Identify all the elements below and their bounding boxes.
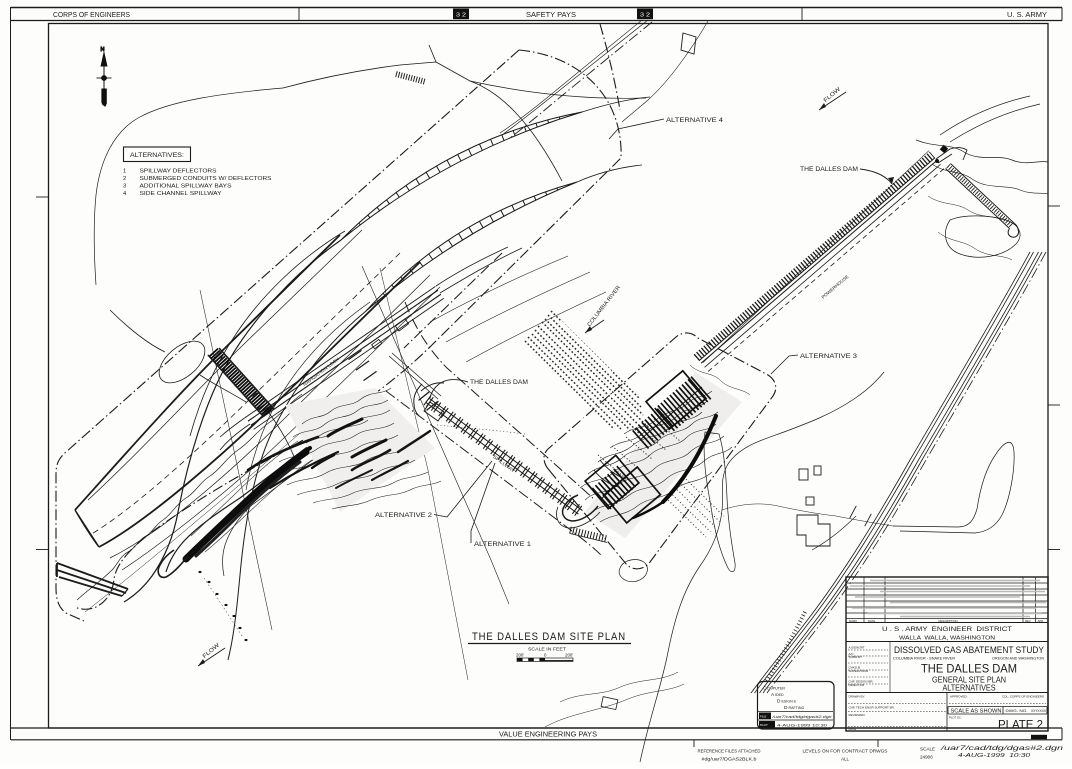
svg-text:PLOT SC.: PLOT SC. [949, 716, 962, 720]
svg-text:ALTERNATIVES:: ALTERNATIVES: [130, 152, 184, 159]
svg-text:DISSOLVED GAS ABATEMENT STUDY: DISSOLVED GAS ABATEMENT STUDY [894, 645, 1044, 655]
svg-text:RAFTING: RAFTING [789, 706, 805, 710]
svg-text:DATE: DATE [849, 727, 857, 731]
svg-text:ALTERNATIVE 1: ALTERNATIVE 1 [474, 542, 532, 548]
svg-text:COLUMBIA RIVER - SNAKE RIVER: COLUMBIA RIVER - SNAKE RIVER [893, 657, 956, 661]
svg-text:A.E/ENGRT: A.E/ENGRT [849, 646, 865, 650]
svg-text:XXYXXXX: XXYXXXX [1031, 709, 1047, 713]
svg-text:/uar7/cad/tdg/dgas#2.dgn: /uar7/cad/tdg/dgas#2.dgn [771, 715, 832, 719]
svg-text:THE DALLES DAM: THE DALLES DAM [921, 662, 1017, 676]
svg-text:REV: REV [1025, 619, 1031, 623]
svg-text:REVIEWED:: REVIEWED: [849, 713, 866, 717]
svg-text:U . S . ARMY ENGINEER DISTRI: U . S . ARMY ENGINEER DISTRICT [882, 627, 1012, 633]
svg-text:2: 2 [123, 176, 126, 182]
svg-text:APR: APR [1038, 619, 1044, 623]
svg-text:200': 200' [516, 653, 524, 658]
svg-text:SCALE: SCALE [920, 747, 935, 752]
svg-text:D: D [777, 699, 781, 705]
svg-text:SUBM BY: SUBM BY [849, 655, 863, 659]
svg-text:SUBMERGED CONDUITS W/ DEFLECTO: SUBMERGED CONDUITS W/ DEFLECTORS [140, 176, 272, 182]
svg-text:PLATE 2: PLATE 2 [998, 718, 1043, 732]
svg-text:SAFETY PAYS: SAFETY PAYS [526, 10, 576, 19]
svg-text:IDED: IDED [775, 693, 784, 697]
svg-text:DATE: DATE [868, 619, 875, 623]
svg-text:REFERENCE FILES ATTACHED: REFERENCE FILES ATTACHED [698, 749, 761, 754]
svg-text:SPILLWAY DEFLECTORS: SPILLWAY DEFLECTORS [140, 168, 217, 174]
svg-text:DWG. NO.: DWG. NO. [1006, 708, 1028, 713]
svg-text:LEVELS ON FOR CONTRACT DRWGS: LEVELS ON FOR CONTRACT DRWGS [803, 749, 888, 754]
svg-text:200': 200' [565, 653, 573, 658]
svg-text:DRAWN BY:: DRAWN BY: [849, 695, 866, 699]
svg-text:SCALE IN FEET: SCALE IN FEET [528, 647, 566, 652]
svg-text:#dg/uar7/DGAS2BLK.b: #dg/uar7/DGAS2BLK.b [702, 757, 758, 762]
svg-text:OREGON AND WASHINGTON: OREGON AND WASHINGTON [992, 657, 1045, 661]
svg-text:ALL: ALL [841, 757, 849, 762]
svg-text:ADDITIONAL SPILLWAY BAYS: ADDITIONAL SPILLWAY BAYS [140, 183, 232, 189]
svg-text:1: 1 [123, 168, 126, 174]
svg-text:PLOT: PLOT [760, 723, 768, 727]
svg-text:FILE: FILE [760, 715, 766, 719]
svg-text:CHF, TECH ENGR SUPPORT BR.: CHF, TECH ENGR SUPPORT BR. [849, 706, 895, 710]
svg-text:CORPS OF ENGINEERS: CORPS OF ENGINEERS [53, 10, 130, 19]
svg-text:3 2: 3 2 [456, 13, 466, 19]
svg-text:ALTERNATIVE 2: ALTERNATIVE 2 [375, 513, 433, 519]
svg-text:WALLA WALLA, WASHINGTON: WALLA WALLA, WASHINGTON [899, 636, 995, 642]
svg-text:U. S. ARMY: U. S. ARMY [1007, 10, 1047, 19]
svg-text:COL, CORPS OF ENGINEERS: COL, CORPS OF ENGINEERS [1002, 695, 1044, 699]
svg-text:THE DALLES DAM: THE DALLES DAM [800, 167, 858, 173]
svg-text:3 2: 3 2 [640, 13, 650, 19]
svg-text:MARK: MARK [849, 619, 857, 623]
svg-text:4-AUG-1999 10:30: 4-AUG-1999 10:30 [777, 724, 827, 728]
svg-text:SIDE CHANNEL SPILLWAY: SIDE CHANNEL SPILLWAY [140, 191, 222, 197]
svg-text:ESIGN &: ESIGN & [782, 700, 797, 704]
svg-text:DIRECTOR: DIRECTOR [849, 683, 865, 687]
svg-text:ALTERNATIVES: ALTERNATIVES [943, 684, 996, 693]
svg-text:ALTERNATIVE 3: ALTERNATIVE 3 [800, 354, 858, 360]
svg-text:OMPUTER: OMPUTER [767, 687, 785, 691]
svg-text:ALTERNATIVE 4: ALTERNATIVE 4 [666, 118, 724, 124]
svg-text:SCALE AS SHOWN: SCALE AS SHOWN [951, 708, 1002, 714]
svg-text:SUPERVISOR: SUPERVISOR [849, 669, 869, 673]
svg-text:DESCRIPTION: DESCRIPTION [938, 619, 957, 623]
svg-text:VALUE ENGINEERING PAYS: VALUE ENGINEERING PAYS [499, 730, 597, 739]
svg-text:THE DALLES DAM SITE PLAN: THE DALLES DAM SITE PLAN [472, 631, 626, 643]
svg-text:24906: 24906 [920, 755, 933, 760]
svg-text:3: 3 [123, 183, 126, 189]
svg-text:/uar7/cad/tdg/dgas#2.dgn: /uar7/cad/tdg/dgas#2.dgn [939, 745, 1063, 752]
svg-text:THE DALLES DAM: THE DALLES DAM [470, 380, 528, 386]
svg-text:APPROVED:: APPROVED: [950, 695, 968, 699]
svg-text:4-AUG-1999 10:30: 4-AUG-1999 10:30 [958, 753, 1030, 759]
svg-text:D: D [784, 705, 788, 711]
